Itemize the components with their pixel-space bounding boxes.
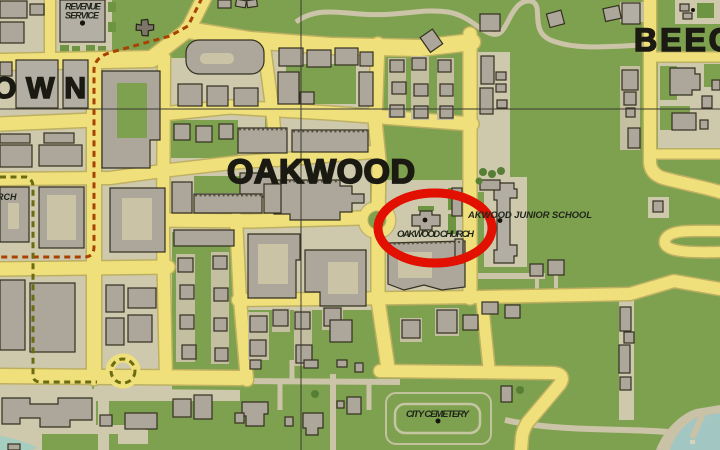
- svg-text:BEEC: BEEC: [634, 22, 720, 58]
- svg-text:OWN: OWN: [0, 72, 89, 105]
- svg-text:RCH: RCH: [0, 192, 17, 202]
- svg-text:AKWOOD JUNIOR SCHOOL: AKWOOD JUNIOR SCHOOL: [467, 210, 592, 221]
- svg-text:CITY CEMETERY: CITY CEMETERY: [406, 409, 471, 420]
- svg-text:OAKWOOD CHURCH: OAKWOOD CHURCH: [397, 229, 475, 240]
- svg-text:OAKWOOD: OAKWOOD: [227, 153, 416, 191]
- svg-text:SERVICE: SERVICE: [65, 11, 100, 21]
